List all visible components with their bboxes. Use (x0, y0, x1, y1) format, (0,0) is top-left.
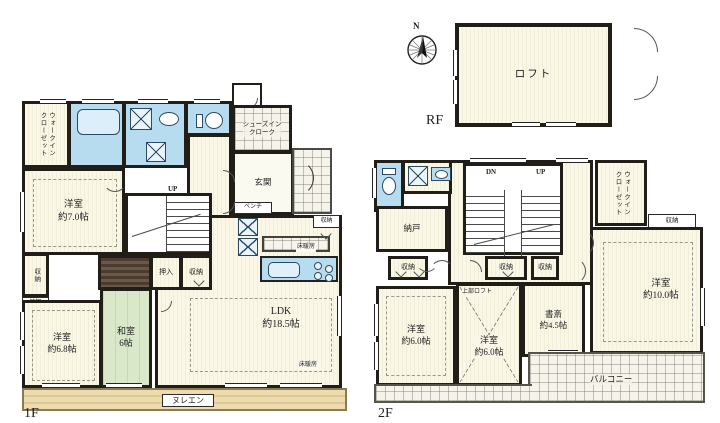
balcony-deep: バルコニー (528, 352, 705, 403)
nando-storage-room: 納戸 (376, 206, 448, 252)
room10-inner-dash (603, 242, 693, 342)
window (470, 158, 526, 163)
study-door-arc (560, 258, 586, 284)
room10-door-arc (568, 230, 594, 256)
washbasin-icon (431, 167, 451, 181)
room6a-inner-dash (386, 296, 446, 376)
room6a-door-arc (430, 260, 454, 284)
wash-corner-2f (402, 160, 452, 194)
window (556, 158, 588, 163)
window (372, 168, 377, 198)
room-study: 書斎 約4.5帖 (522, 283, 585, 357)
room-yoshitsu-10: 洋室 約10.0帖 (590, 227, 703, 354)
balcony-label: バルコニー (590, 374, 632, 385)
shuno-top-right-label: 収納 (666, 217, 679, 225)
stairs-dn-label: DN (486, 168, 496, 177)
toilet-tank-icon-2f (382, 168, 396, 175)
window (374, 304, 379, 336)
floor-plan-sheet: LDK 約18.5帖 床暖房 ウォークイン クローゼット シューズイン クローク (0, 0, 720, 423)
balcony-strip (374, 384, 532, 403)
upper-loft-label: 上部ロフト (462, 289, 492, 297)
stairs-up-label-2f: UP (536, 168, 545, 177)
room-study-label: 書斎 約4.5帖 (540, 309, 568, 331)
shuno-2f-mid: 収納 (485, 256, 527, 280)
floor2-title: 2F (378, 405, 393, 423)
floor2-plan: 納戸 DN UP ウォークイン クローゼット 収納 洋室 約10.0帖 収納 (0, 0, 720, 423)
stair-treads-2f-right (521, 190, 560, 256)
toilet-bowl-icon-2f (382, 177, 396, 195)
walk-in-closet-2f-label: ウォークイン クローゼット (613, 171, 630, 216)
shuno-2f-right: 収納 (531, 256, 559, 280)
toilet-2f (374, 160, 404, 212)
room-yoshitsu-6b-label: 洋室 約6.0帖 (474, 335, 503, 358)
shuno-2f-right-label: 収納 (538, 263, 552, 272)
room-yoshitsu-6b: 上部ロフト 洋室 約6.0帖 (456, 283, 522, 386)
stair-treads-2f-left (466, 190, 505, 256)
washbasin-cabinet-icon (408, 166, 428, 186)
walk-in-closet-2f: ウォークイン クローゼット (595, 160, 647, 226)
nando-label: 納戸 (403, 223, 420, 234)
stairs-2f (463, 163, 563, 255)
washbasin-oval (435, 170, 448, 179)
window (374, 342, 379, 370)
window (700, 288, 705, 326)
room-yoshitsu-6a: 洋室 約6.0帖 (376, 286, 456, 386)
